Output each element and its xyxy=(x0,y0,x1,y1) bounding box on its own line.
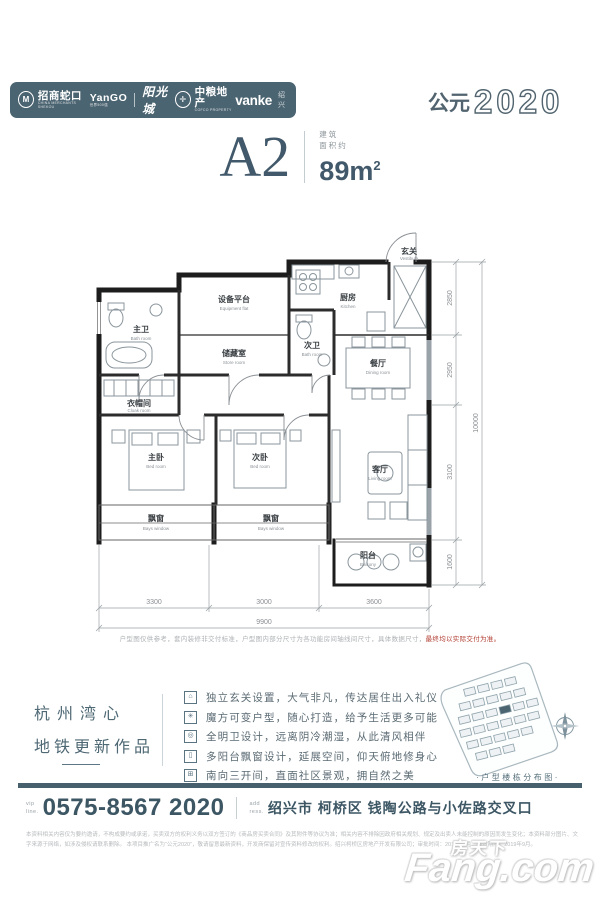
sun-icon: ◎ xyxy=(184,730,197,743)
diagram-label: ·户型楼栋分布图· xyxy=(476,772,560,782)
contact-divider xyxy=(236,797,237,819)
room-vestibule: 玄关 xyxy=(401,246,417,256)
feature-text: 南向三开间，直面社区景观，拥自然之美 xyxy=(206,768,415,783)
brand-cmsk: M 招商蛇口 CHINA MERCHANTS SHEKOU xyxy=(18,91,90,109)
brand-yango-caption: 世界500强 xyxy=(90,104,128,108)
dim-3000: 3000 xyxy=(256,599,272,606)
feature-row: ✳ 魔方可变户型，随心打造，给予生活更多可能 xyxy=(184,710,456,725)
slogan-block: 杭州湾心 地铁更新作品 xyxy=(34,700,154,757)
dim-10000: 10000 xyxy=(473,413,480,433)
title-divider xyxy=(304,131,305,183)
dim-1600: 1600 xyxy=(447,554,454,570)
room-master-bath: 主卫 xyxy=(133,324,149,334)
cofco-logo-icon: ✛ xyxy=(175,91,191,108)
room-kitchen-en: Kitchen xyxy=(340,304,356,309)
brand-vanke-suffix: 绍兴 xyxy=(278,90,288,110)
room-cloak: 衣帽间 xyxy=(127,398,151,408)
plan-furniture xyxy=(104,265,427,570)
brand-vanke-name: vanke xyxy=(235,93,272,108)
room-balcony-en: Balcony xyxy=(360,562,377,567)
dim-9900: 9900 xyxy=(256,619,272,626)
feature-row: ⊞ 南向三开间，直面社区景观，拥自然之美 xyxy=(184,768,456,783)
feature-text: 魔方可变户型，随心打造，给予生活更多可能 xyxy=(206,710,438,725)
room-equipment: 设备平台 xyxy=(218,294,250,304)
window-icon: ▯ xyxy=(184,750,197,763)
phone-prefix-1: vip xyxy=(26,800,39,808)
grid-icon: ⊞ xyxy=(184,769,197,782)
brand-cofco: ✛ 中粮地产 COFCO PROPERTY xyxy=(175,87,235,113)
room-kitchen: 厨房 xyxy=(340,292,356,302)
room-store: 储藏室 xyxy=(221,348,246,358)
room-living: 客厅 xyxy=(371,464,388,474)
contact-row: vip line. 0575-8567 2020 add ress. 绍兴市 柯… xyxy=(26,794,533,822)
watermark-en: Fang.com xyxy=(403,846,597,891)
room-balcony: 阳台 xyxy=(360,550,376,560)
area-caption-1: 建筑 xyxy=(319,129,380,140)
feature-text: 全明卫设计，远离阴冷潮湿，从此清风相伴 xyxy=(206,729,426,744)
room-living-en: Living room xyxy=(368,476,392,481)
cube-icon: ✳ xyxy=(184,711,197,724)
flyer-page: M 招商蛇口 CHINA MERCHANTS SHEKOU YanGO 世界50… xyxy=(0,0,600,900)
dim-3300: 3300 xyxy=(146,599,162,606)
year-prefix-text: 公元 xyxy=(428,92,470,115)
feature-row: ▯ 多阳台飘窗设计，延展空间，仰天俯地修身心 xyxy=(184,749,456,764)
fang-watermark: 房天下 Fang.com xyxy=(376,836,598,898)
slogan-underline xyxy=(62,764,100,765)
brand-cmsk-caption: CHINA MERCHANTS SHEKOU xyxy=(38,102,90,109)
brand-divider xyxy=(134,93,135,107)
room-vestibule-en: Vestibule xyxy=(400,256,419,261)
brand-vanke: vanke 绍兴 xyxy=(235,90,288,110)
room-second-bed-en: Bed room xyxy=(250,464,270,469)
slogan-line-2: 地铁更新作品 xyxy=(34,733,154,757)
plan-disclaimer: 户型图仅供参考，套内装修非交付标准，户型图内部分尺寸为各功能房间轴线间尺寸，具体… xyxy=(100,633,520,643)
room-bay-2: 飘窗 xyxy=(263,513,279,523)
room-bay-1-en: Bays window xyxy=(143,526,170,531)
room-master-bed: 主卧 xyxy=(148,452,164,462)
dim-3100: 3100 xyxy=(447,464,454,480)
room-master-bath-en: Bath room xyxy=(131,336,152,341)
year-2020-logo: 公元 2020 xyxy=(426,80,578,122)
brand-bar: M 招商蛇口 CHINA MERCHANTS SHEKOU YanGO 世界50… xyxy=(10,82,296,118)
site-plan-diagram: ·户型楼栋分布图· xyxy=(438,660,590,788)
address-prefix-1: add xyxy=(249,800,263,808)
cmsk-logo-icon: M xyxy=(18,91,34,108)
vestibule-icon: ⌂ xyxy=(184,691,197,704)
year-digits-text: 2020 xyxy=(474,83,563,120)
brand-cofco-name: 中粮地产 xyxy=(195,87,236,109)
room-cloak-en: Cloak room xyxy=(127,408,150,413)
feature-row: ⌂ 独立玄关设置，大气非凡，传达居住出入礼仪 xyxy=(184,690,456,705)
room-equipment-en: Equipment flat xyxy=(220,306,250,311)
site-outline xyxy=(438,660,561,781)
project-address: 绍兴市 柯桥区 钱陶公路与小佐路交叉口 xyxy=(268,798,533,818)
phone-number: 0575-8567 2020 xyxy=(43,794,225,822)
address-prefix-2: ress. xyxy=(249,808,263,816)
room-bay-2-en: Bays window xyxy=(258,526,285,531)
floor-plan: 设备平台 Equipment flat 储藏室 Store room 主卫 Ba… xyxy=(84,222,524,640)
slogan-line-1: 杭州湾心 xyxy=(34,700,154,724)
room-store-en: Store room xyxy=(223,360,246,365)
divider-bar xyxy=(18,783,582,788)
plan-walls xyxy=(99,262,429,585)
room-dining-en: Dining room xyxy=(366,370,391,375)
room-bay-1: 飘窗 xyxy=(148,513,164,523)
dim-3600: 3600 xyxy=(366,599,382,606)
area-value: 89m2 xyxy=(319,158,380,185)
room-second-bath: 次卫 xyxy=(304,340,320,350)
room-master-bed-en: Bed room xyxy=(146,464,166,469)
feature-text: 多阳台飘窗设计，延展空间，仰天俯地修身心 xyxy=(206,749,438,764)
plan-name: A2 xyxy=(219,128,290,186)
dim-2950: 2950 xyxy=(447,362,454,378)
room-dining: 餐厅 xyxy=(369,358,386,368)
section-divider xyxy=(162,694,163,766)
feature-list: ⌂ 独立玄关设置，大气非凡，传达居住出入礼仪 ✳ 魔方可变户型，随心打造，给予生… xyxy=(184,690,456,788)
room-second-bath-en: Bath room xyxy=(302,352,323,357)
area-caption-2: 面积约 xyxy=(319,140,380,151)
brand-cofco-caption: COFCO PROPERTY xyxy=(195,109,236,113)
brand-yango: YanGO 世界500强 阳光城 xyxy=(90,83,175,117)
feature-row: ◎ 全明卫设计，远离阴冷潮湿，从此清风相伴 xyxy=(184,729,456,744)
phone-prefix-2: line. xyxy=(26,808,39,816)
title-block: A2 建筑 面积约 89m2 xyxy=(0,128,600,186)
feature-text: 独立玄关设置，大气非凡，传达居住出入礼仪 xyxy=(206,690,438,705)
room-second-bed: 次卧 xyxy=(252,452,268,462)
brand-yango-script: 阳光城 xyxy=(142,83,175,117)
dim-2850: 2850 xyxy=(447,290,454,306)
